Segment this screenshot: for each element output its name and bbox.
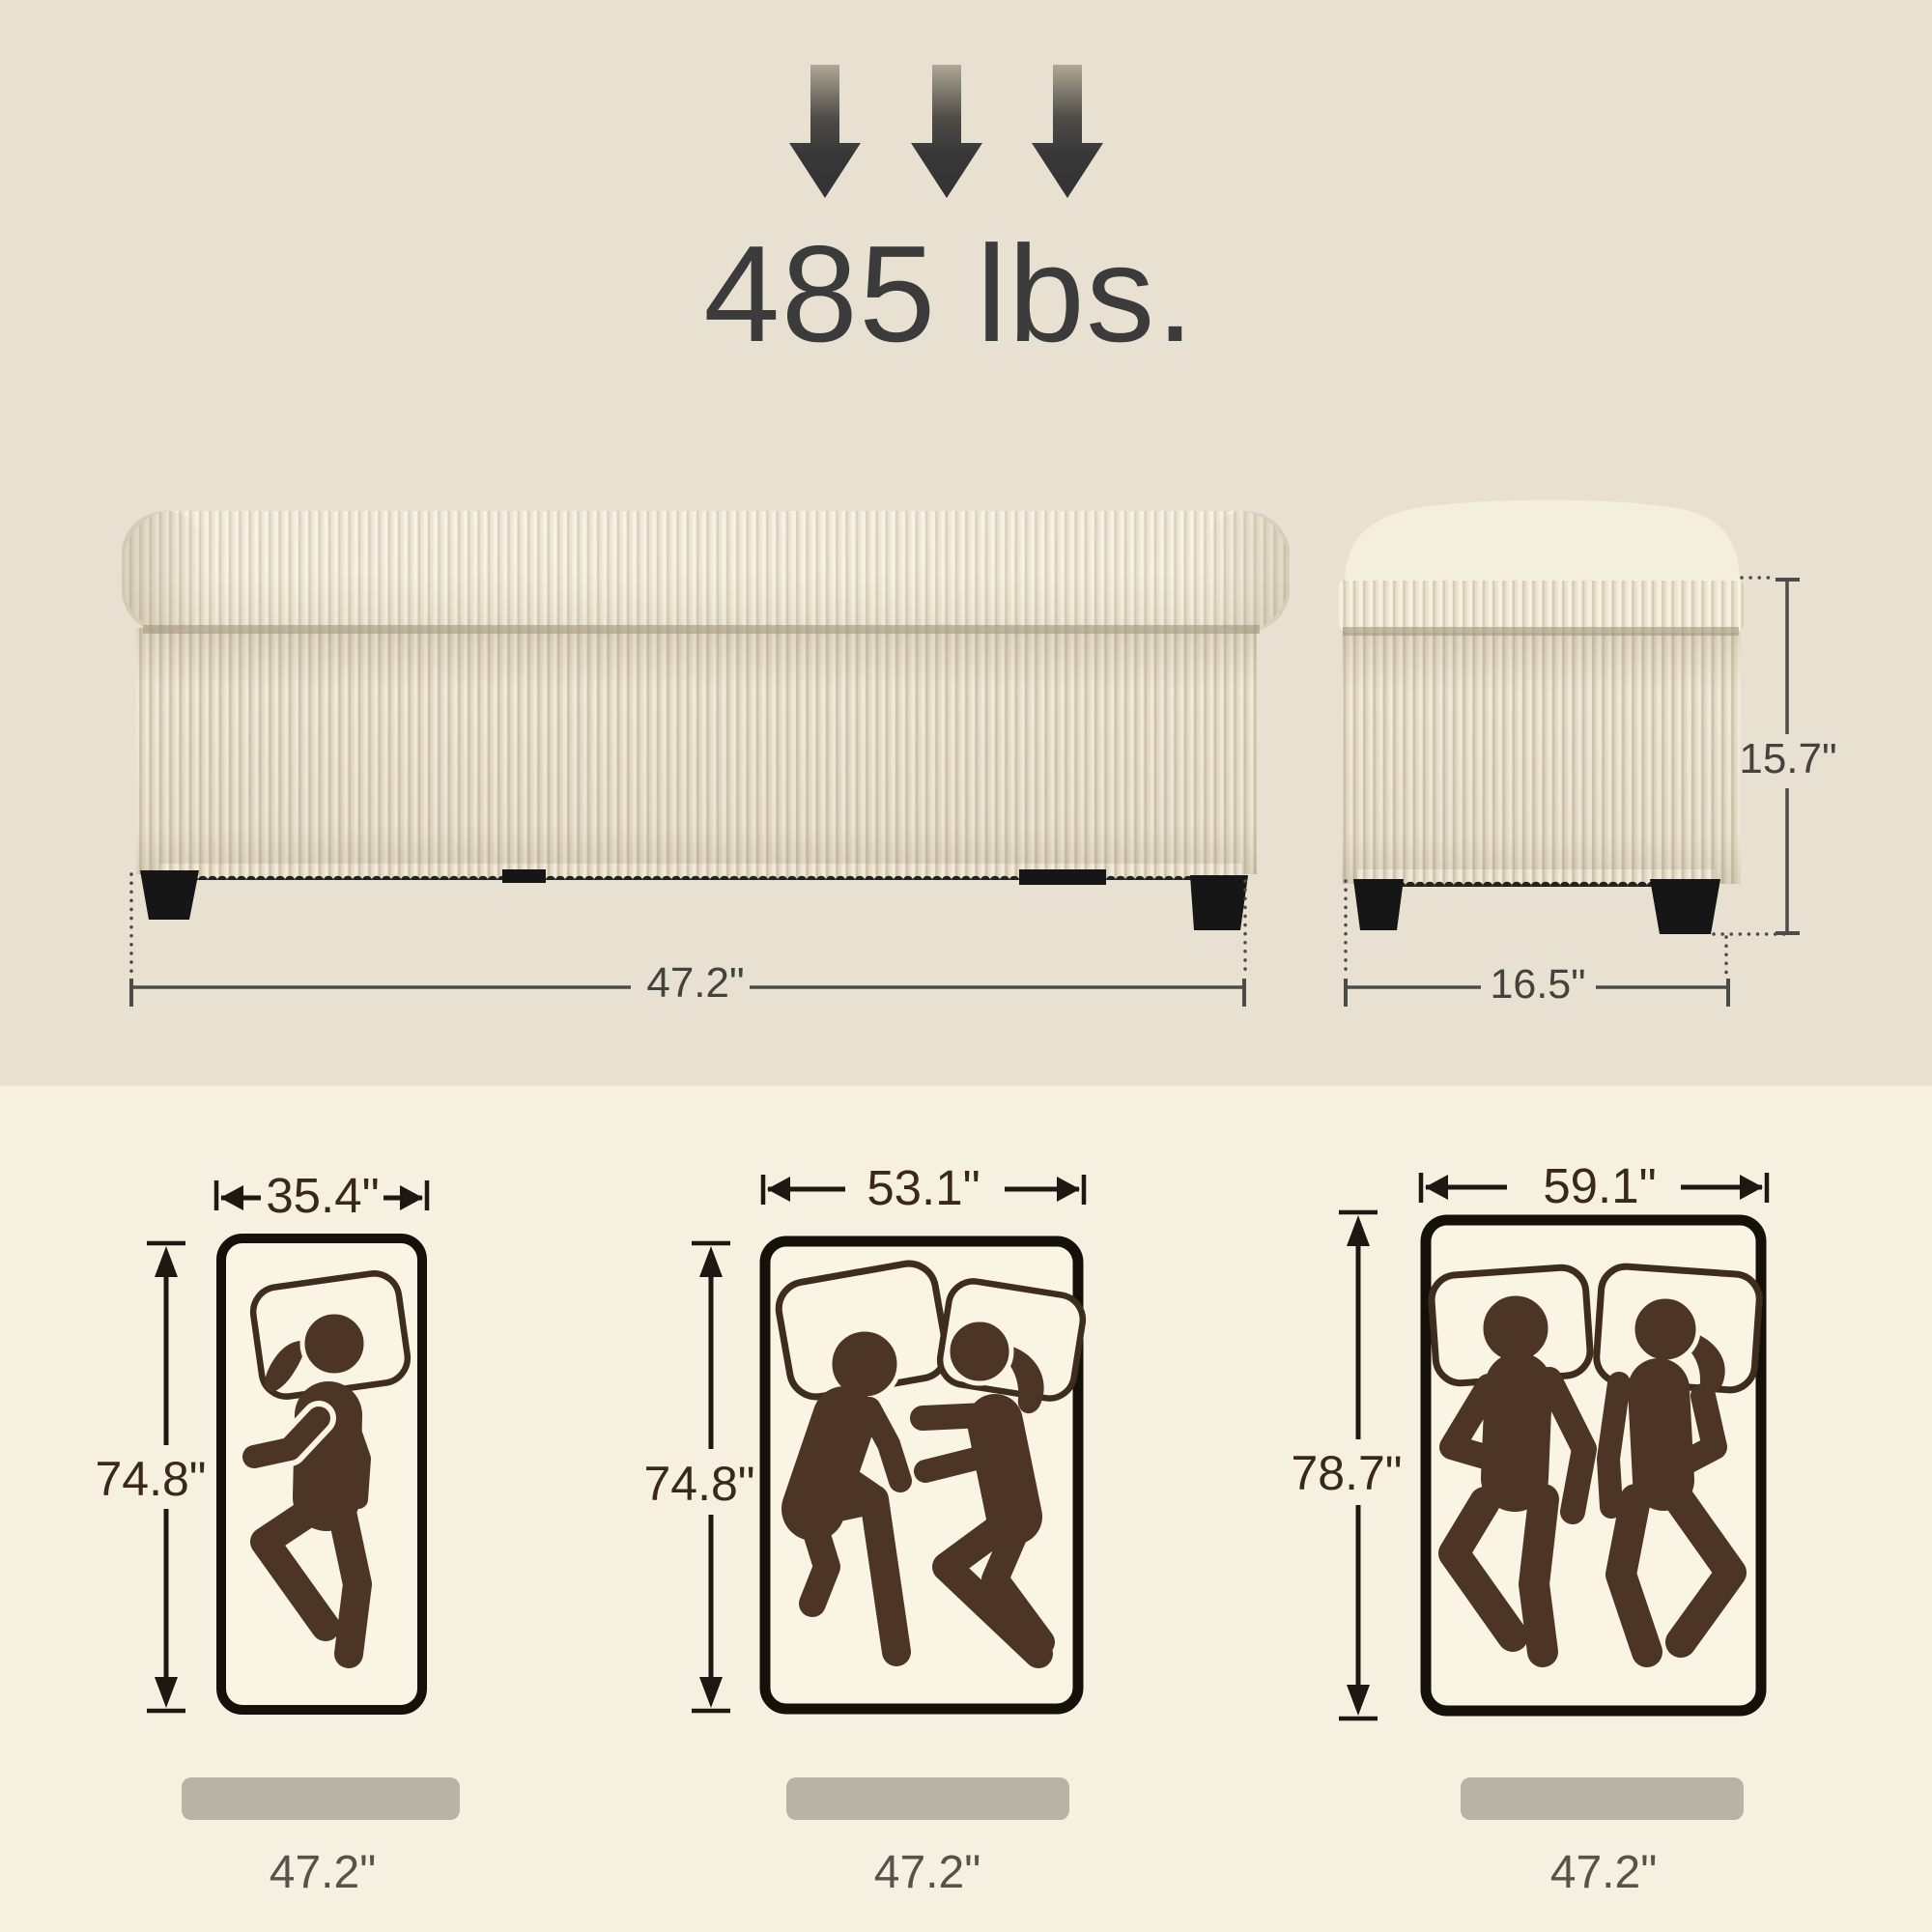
svg-text:74.8": 74.8" <box>95 1452 206 1506</box>
svg-text:78.7": 78.7" <box>1291 1446 1402 1500</box>
svg-text:47.2": 47.2" <box>270 1847 376 1898</box>
svg-text:59.1": 59.1" <box>1543 1158 1656 1213</box>
svg-text:74.8": 74.8" <box>643 1457 754 1511</box>
svg-text:47.2": 47.2" <box>874 1847 980 1898</box>
svg-text:47.2": 47.2" <box>1550 1847 1657 1898</box>
svg-text:35.4": 35.4" <box>266 1168 379 1223</box>
svg-text:16.5": 16.5" <box>1491 961 1586 1008</box>
svg-text:53.1": 53.1" <box>867 1160 980 1215</box>
svg-text:47.2": 47.2" <box>646 959 744 1007</box>
svg-text:15.7": 15.7" <box>1739 735 1836 782</box>
